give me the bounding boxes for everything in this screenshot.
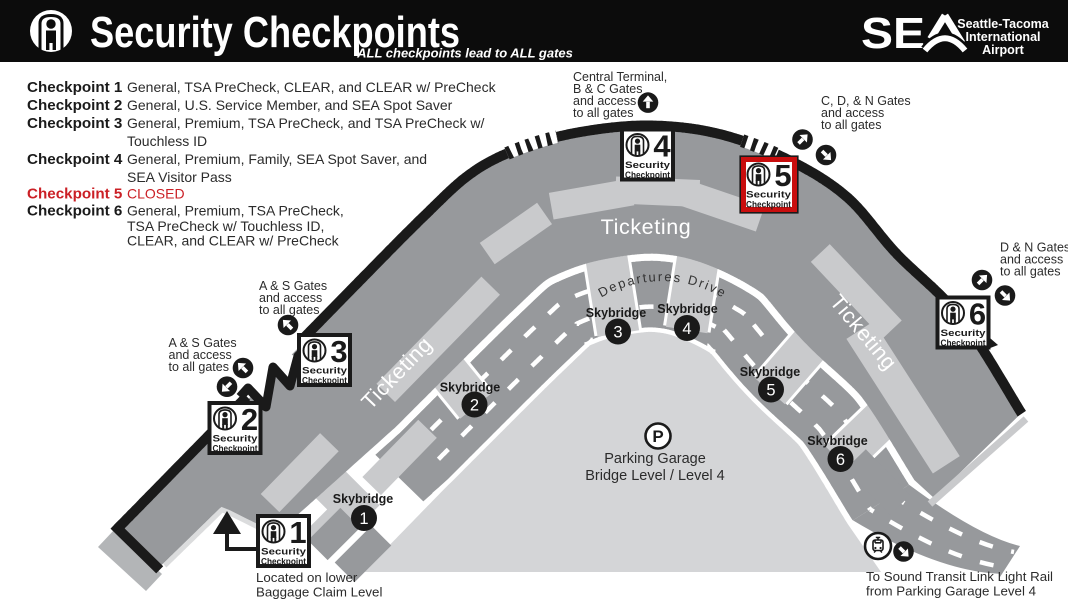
svg-text:Checkpoint 1: Checkpoint 1: [27, 79, 123, 96]
svg-text:Skybridge: Skybridge: [586, 306, 646, 320]
svg-text:4: 4: [682, 320, 691, 338]
svg-text:General, Premium, TSA PreCheck: General, Premium, TSA PreCheck,: [127, 203, 344, 219]
svg-text:6: 6: [836, 451, 845, 469]
svg-text:Ticketing: Ticketing: [601, 215, 692, 239]
svg-text:to all gates: to all gates: [821, 118, 881, 132]
svg-text:Seattle-Tacoma: Seattle-Tacoma: [957, 17, 1050, 31]
svg-text:to all gates: to all gates: [573, 106, 633, 120]
svg-text:Parking Garage: Parking Garage: [604, 451, 706, 467]
svg-text:Checkpoint 6: Checkpoint 6: [27, 203, 122, 220]
svg-text:3: 3: [330, 334, 347, 369]
svg-text:Airport: Airport: [982, 43, 1025, 57]
svg-text:Checkpoint 2: Checkpoint 2: [27, 97, 122, 114]
svg-text:Checkpoint: Checkpoint: [625, 170, 670, 180]
svg-text:from Parking Garage Level 4: from Parking Garage Level 4: [866, 584, 1036, 599]
svg-text:Security: Security: [746, 190, 792, 200]
svg-text:P: P: [652, 427, 663, 446]
svg-text:CLEAR, and CLEAR w/ PreCheck: CLEAR, and CLEAR w/ PreCheck: [127, 233, 340, 249]
svg-text:To Sound Transit Link Light Ra: To Sound Transit Link Light Rail: [866, 569, 1053, 584]
svg-text:1: 1: [359, 510, 368, 528]
svg-text:2: 2: [470, 396, 479, 414]
svg-text:5: 5: [766, 381, 775, 399]
svg-text:Touchless ID: Touchless ID: [127, 133, 207, 149]
svg-text:Security: Security: [302, 366, 348, 376]
svg-text:Checkpoint 3: Checkpoint 3: [27, 115, 122, 132]
svg-text:General, TSA PreCheck, CLEAR,: General, TSA PreCheck, CLEAR, and CLEAR …: [127, 79, 497, 95]
svg-text:Checkpoint: Checkpoint: [213, 444, 258, 454]
svg-text:3: 3: [613, 323, 622, 341]
svg-text:Security: Security: [625, 160, 671, 170]
svg-text:Checkpoint 4: Checkpoint 4: [27, 151, 123, 168]
svg-text:General, U.S. Service Member,: General, U.S. Service Member, and SEA Sp…: [127, 97, 453, 113]
svg-text:Checkpoint: Checkpoint: [746, 200, 791, 210]
svg-text:Checkpoint: Checkpoint: [941, 338, 986, 348]
svg-text:ALL checkpoints lead to ALL ga: ALL checkpoints lead to ALL gates: [356, 46, 573, 61]
svg-text:1: 1: [289, 515, 306, 550]
svg-text:6: 6: [969, 297, 986, 332]
svg-text:CLOSED: CLOSED: [127, 186, 185, 202]
svg-text:General, Premium, TSA PreCheck: General, Premium, TSA PreCheck, and TSA …: [127, 115, 485, 131]
svg-text:SE: SE: [861, 9, 925, 58]
svg-text:to all gates: to all gates: [169, 360, 229, 374]
svg-text:Skybridge: Skybridge: [333, 492, 393, 506]
svg-text:Checkpoint: Checkpoint: [302, 376, 347, 386]
svg-text:Security: Security: [261, 547, 307, 557]
svg-text:Located on lower: Located on lower: [256, 570, 358, 585]
svg-text:to all gates: to all gates: [1000, 265, 1060, 279]
svg-text:Security: Security: [213, 434, 259, 444]
svg-text:Baggage Claim Level: Baggage Claim Level: [256, 585, 382, 600]
svg-text:Bridge Level / Level 4: Bridge Level / Level 4: [585, 468, 724, 484]
svg-text:Checkpoint: Checkpoint: [261, 557, 306, 567]
svg-text:4: 4: [653, 129, 671, 164]
svg-text:Security: Security: [941, 328, 987, 338]
svg-text:International: International: [965, 30, 1040, 44]
svg-text:SEA Visitor Pass: SEA Visitor Pass: [127, 169, 232, 185]
svg-text:Checkpoint 5: Checkpoint 5: [27, 186, 123, 203]
svg-text:5: 5: [774, 158, 791, 193]
svg-text:Skybridge: Skybridge: [657, 302, 717, 316]
svg-text:General, Premium, Family, SEA: General, Premium, Family, SEA Spot Saver…: [127, 151, 427, 167]
svg-text:Skybridge: Skybridge: [807, 434, 867, 448]
svg-text:2: 2: [241, 402, 258, 437]
